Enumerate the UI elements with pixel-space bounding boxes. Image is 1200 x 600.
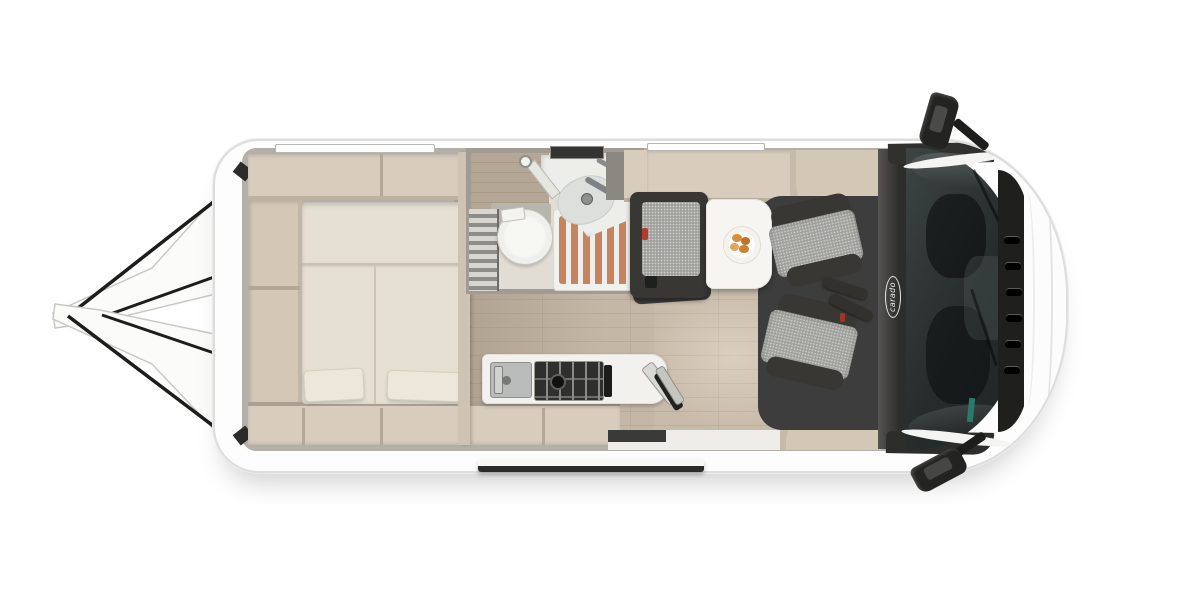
stove-knob-strip [604, 365, 612, 397]
mirror-arm [952, 118, 990, 152]
shelf-divider [302, 408, 305, 445]
bed-pillow-left [303, 367, 365, 402]
shelf-divider [248, 286, 300, 290]
side-mirror-bottom [906, 438, 990, 510]
bench-bracket [645, 276, 657, 288]
entry-step-rail [478, 459, 704, 472]
bed-pillow-right [386, 370, 461, 403]
brand-logo-text: carado [889, 282, 897, 312]
hood-crease [1019, 191, 1035, 407]
van-body: carado [213, 139, 1068, 473]
cab-roof-band: carado [878, 149, 908, 449]
cowl-vent [1004, 366, 1020, 374]
wall-niche [606, 152, 624, 200]
pastry [741, 237, 750, 245]
faucet-spout [502, 376, 511, 385]
side-mirror-top [916, 92, 996, 162]
kitchen-counter [482, 354, 667, 404]
shelf-divider [542, 408, 545, 445]
camper-floorplan-image: carado [0, 0, 1200, 600]
brand-logo-wrap: carado [885, 276, 901, 318]
roof-window-strip-dinette [647, 143, 765, 151]
bathroom-skylight-window [550, 146, 604, 159]
bathroom-door-hinge [519, 155, 532, 168]
stove-grate [534, 361, 604, 401]
stove-burner [550, 374, 566, 390]
pastry [730, 243, 739, 251]
entry-threshold-dark [608, 430, 666, 442]
roof-window-strip-rear [275, 144, 435, 153]
bed-split-horizontal [302, 263, 467, 265]
pastry [739, 245, 749, 253]
rear-door-lower [53, 304, 224, 440]
shelf-divider [380, 408, 383, 445]
cowl-vent [1004, 236, 1020, 244]
bed-split-vertical [374, 265, 376, 404]
dinette-bench-cushion [642, 202, 700, 276]
shower-sliding-door [469, 209, 499, 291]
overhead-shelf-rear [248, 154, 464, 200]
seatbelt-buckle-red [642, 228, 648, 240]
rear-doors-open [40, 170, 240, 462]
seatbelt-tab-red [840, 313, 845, 322]
shelf-divider [380, 154, 383, 196]
brand-logo: carado [885, 276, 901, 318]
faucet [581, 193, 593, 205]
